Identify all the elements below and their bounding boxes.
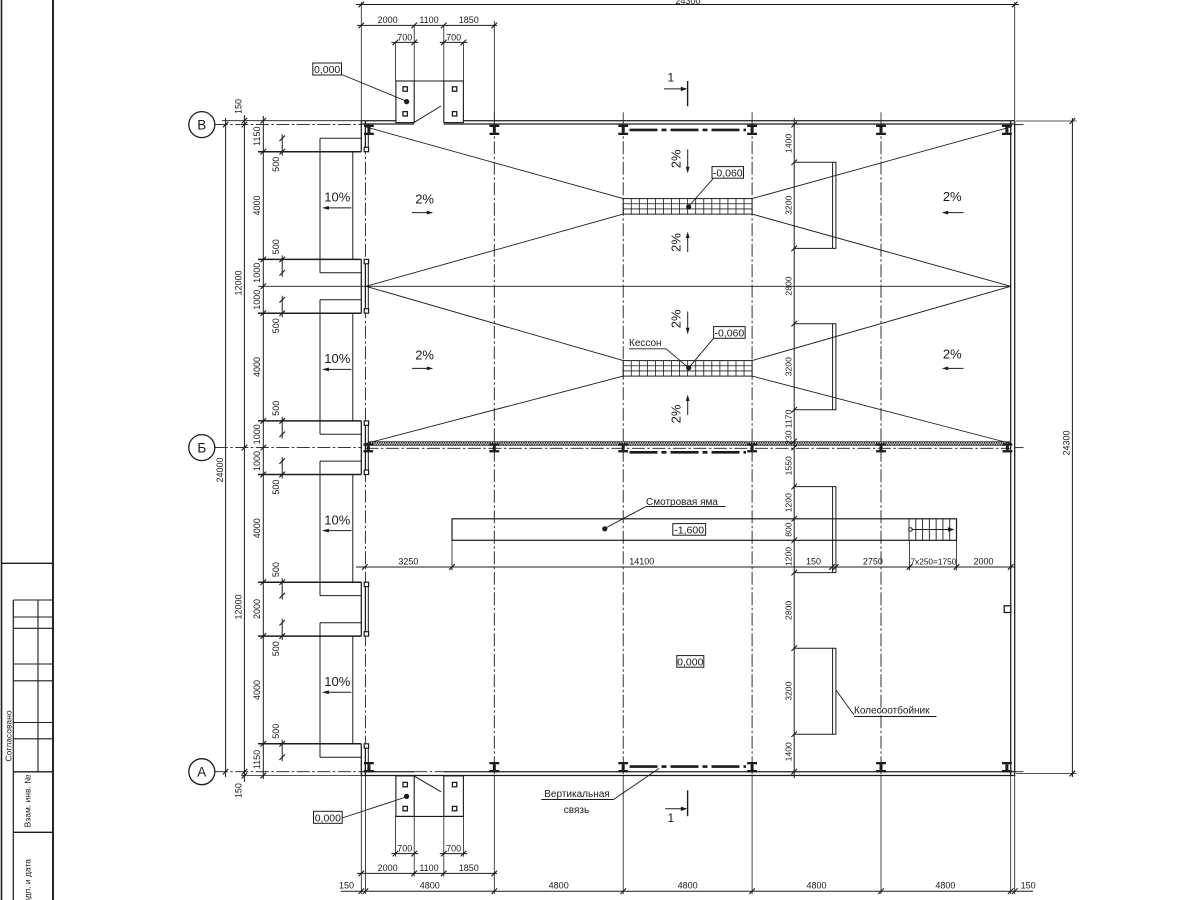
- svg-text:700: 700: [446, 844, 461, 854]
- svg-text:1000: 1000: [252, 290, 262, 310]
- svg-text:Б: Б: [197, 441, 206, 456]
- svg-text:24300: 24300: [1061, 430, 1071, 455]
- svg-text:1850: 1850: [459, 863, 479, 873]
- svg-text:0,000: 0,000: [314, 64, 340, 76]
- svg-text:500: 500: [271, 157, 281, 172]
- svg-text:2000: 2000: [378, 15, 398, 25]
- svg-text:700: 700: [397, 33, 412, 43]
- svg-text:4800: 4800: [420, 881, 440, 891]
- svg-text:1100: 1100: [419, 863, 438, 873]
- svg-text:2800: 2800: [784, 276, 794, 295]
- svg-text:-1,600: -1,600: [674, 524, 704, 536]
- svg-text:связь: связь: [564, 805, 589, 816]
- svg-text:2750: 2750: [863, 556, 883, 566]
- svg-text:500: 500: [271, 562, 281, 577]
- svg-text:4000: 4000: [252, 195, 262, 215]
- svg-text:3200: 3200: [784, 196, 794, 215]
- svg-text:4000: 4000: [252, 518, 262, 538]
- svg-text:500: 500: [271, 239, 281, 254]
- svg-text:2%: 2%: [669, 149, 684, 168]
- svg-text:2000: 2000: [252, 599, 262, 619]
- svg-text:2000: 2000: [973, 556, 993, 566]
- svg-text:800: 800: [784, 522, 794, 537]
- svg-text:2000: 2000: [378, 863, 398, 873]
- svg-text:12000: 12000: [233, 270, 243, 295]
- svg-text:1200: 1200: [784, 493, 794, 512]
- svg-text:24300: 24300: [675, 0, 700, 6]
- svg-text:1150: 1150: [252, 127, 262, 146]
- svg-text:700: 700: [446, 33, 461, 43]
- svg-text:2800: 2800: [784, 601, 794, 620]
- svg-text:1: 1: [667, 811, 674, 825]
- svg-text:2%: 2%: [415, 192, 434, 207]
- svg-text:10%: 10%: [324, 190, 350, 205]
- svg-text:500: 500: [271, 401, 281, 416]
- svg-text:1100: 1100: [419, 15, 438, 25]
- svg-text:1550: 1550: [784, 456, 794, 475]
- svg-text:В: В: [197, 118, 206, 133]
- svg-text:7х250=1750: 7х250=1750: [910, 557, 956, 567]
- svg-text:2%: 2%: [943, 347, 962, 362]
- svg-text:10%: 10%: [324, 351, 350, 366]
- svg-text:1: 1: [667, 70, 674, 84]
- svg-text:10%: 10%: [324, 674, 350, 689]
- svg-text:500: 500: [271, 318, 281, 333]
- svg-text:3200: 3200: [784, 681, 794, 700]
- svg-text:1170: 1170: [784, 410, 794, 429]
- svg-text:1400: 1400: [784, 134, 794, 153]
- svg-text:500: 500: [271, 641, 281, 656]
- svg-text:150: 150: [233, 783, 243, 798]
- svg-text:4800: 4800: [806, 881, 826, 891]
- svg-text:4800: 4800: [935, 881, 955, 891]
- svg-text:14100: 14100: [629, 556, 654, 566]
- svg-text:Подп. и дата: Подп. и дата: [22, 859, 32, 900]
- svg-text:Колесоотбойник: Колесоотбойник: [854, 705, 930, 717]
- svg-text:150: 150: [1021, 881, 1036, 891]
- svg-text:3200: 3200: [784, 357, 794, 376]
- svg-text:700: 700: [397, 844, 412, 854]
- svg-text:1200: 1200: [784, 547, 794, 566]
- svg-text:4000: 4000: [252, 680, 262, 700]
- svg-text:150: 150: [233, 99, 243, 114]
- svg-text:24000: 24000: [215, 457, 225, 482]
- svg-text:2%: 2%: [415, 347, 434, 362]
- svg-text:1400: 1400: [784, 742, 794, 761]
- svg-text:2%: 2%: [669, 233, 684, 252]
- svg-text:150: 150: [806, 556, 821, 566]
- svg-text:А: А: [197, 765, 206, 780]
- svg-text:500: 500: [271, 480, 281, 495]
- svg-text:2%: 2%: [669, 309, 684, 328]
- svg-text:-0,060: -0,060: [714, 327, 744, 339]
- svg-text:4800: 4800: [678, 881, 698, 891]
- svg-text:4800: 4800: [549, 881, 569, 891]
- svg-text:Взам. инв. №: Взам. инв. №: [22, 775, 32, 828]
- svg-text:1000: 1000: [252, 263, 262, 283]
- svg-text:2%: 2%: [669, 404, 684, 423]
- svg-text:2%: 2%: [943, 189, 962, 204]
- svg-text:1000: 1000: [252, 424, 262, 444]
- svg-text:1850: 1850: [459, 15, 479, 25]
- svg-text:1150: 1150: [252, 750, 262, 769]
- svg-text:150: 150: [339, 881, 354, 891]
- svg-text:10%: 10%: [324, 512, 350, 527]
- svg-text:500: 500: [271, 724, 281, 739]
- svg-text:Согласовано: Согласовано: [3, 710, 13, 761]
- svg-text:4000: 4000: [252, 357, 262, 377]
- svg-text:Кессон: Кессон: [629, 338, 662, 349]
- svg-text:1000: 1000: [252, 451, 262, 471]
- svg-text:-0,060: -0,060: [713, 167, 743, 179]
- svg-text:12000: 12000: [233, 594, 243, 619]
- svg-text:0,000: 0,000: [315, 812, 341, 824]
- svg-text:0,000: 0,000: [677, 656, 703, 668]
- svg-text:3250: 3250: [398, 556, 418, 566]
- svg-text:Вертикальная: Вертикальная: [544, 789, 609, 800]
